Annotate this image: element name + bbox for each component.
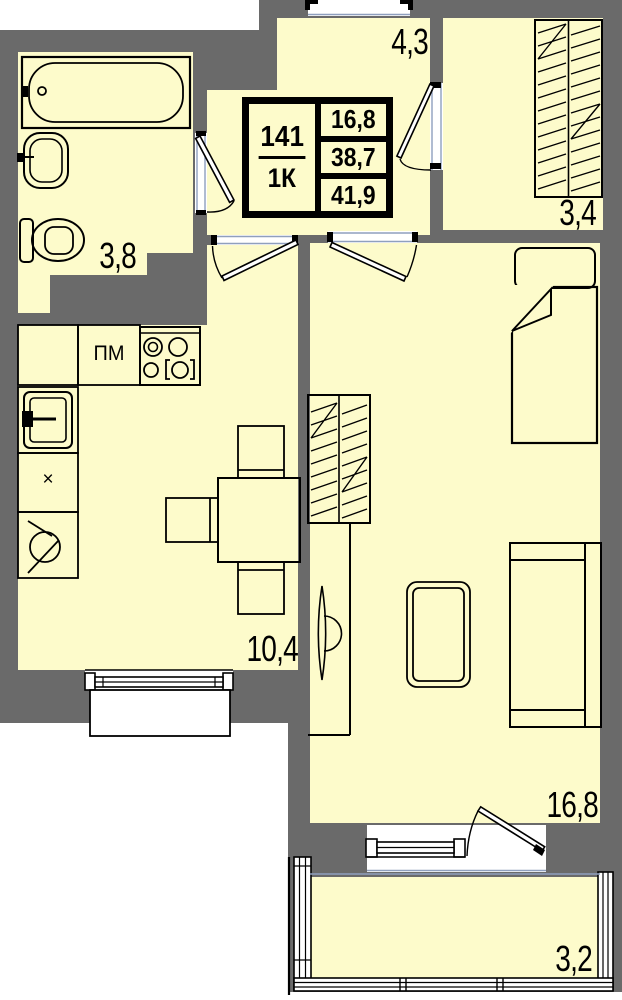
sofa [510, 543, 601, 727]
x-mark-label: × [36, 470, 60, 489]
closet-wardrobe-room [535, 20, 602, 197]
kitchen-area-label: 10,4 [231, 631, 298, 667]
bathroom-area-label: 3,8 [85, 238, 136, 274]
hallway-area-label: 4,3 [375, 24, 428, 60]
living-window-balcony-door [366, 807, 546, 872]
unit-id-cell: 141 1К [249, 104, 321, 211]
living-room-door [327, 231, 418, 281]
dishwasher-label: ПМ [81, 343, 138, 364]
wardrobe-area-label: 3,4 [545, 195, 596, 231]
unit-info-box: 141 1К 16,8 38,7 41,9 [242, 97, 393, 218]
door-leaf [397, 84, 434, 158]
wash-sink [17, 133, 68, 188]
bed [510, 248, 597, 443]
floor-plan: 141 1К 16,8 38,7 41,9 4,3 3,4 3,8 10,4 1… [0, 0, 622, 1000]
fridge [18, 512, 78, 578]
door-leaf [330, 243, 406, 282]
chair-top [238, 426, 284, 478]
door-swing-arc [407, 245, 417, 277]
bathroom-door [195, 131, 234, 215]
coffee-table [407, 582, 470, 687]
unit-type: 1К [268, 163, 296, 194]
apartment-area-value: 38,7 [321, 136, 386, 174]
stove [140, 327, 200, 385]
kitchen-sink [18, 387, 78, 453]
living-area-label: 16,8 [531, 787, 598, 823]
chair-left [166, 498, 218, 542]
tv-stand [308, 523, 350, 735]
kitchen-window [85, 670, 233, 736]
balcony-area-label: 3,2 [539, 941, 592, 977]
unit-number: 141 [258, 121, 305, 159]
bathtub [21, 57, 190, 128]
unit-areas-cell: 16,8 38,7 41,9 [321, 104, 386, 211]
living-area-text: 16,8 [331, 104, 376, 135]
door-leaf [222, 240, 298, 281]
toilet [20, 219, 84, 262]
dining-table [218, 478, 300, 562]
apartment-area-text: 38,7 [331, 142, 376, 173]
window-ledge [90, 690, 230, 736]
entrance-door [305, 0, 413, 16]
door-swing-arc [400, 159, 431, 170]
pillow [515, 248, 595, 288]
living-area-value: 16,8 [321, 104, 386, 136]
kitchen-door [211, 235, 298, 281]
wardrobe-door [397, 82, 443, 170]
total-area-text: 41,9 [331, 180, 376, 211]
closet-living [308, 395, 370, 523]
chair-bottom [238, 562, 284, 614]
door-swing-arc [213, 246, 223, 278]
total-area-value: 41,9 [321, 173, 386, 211]
tv [318, 586, 341, 680]
